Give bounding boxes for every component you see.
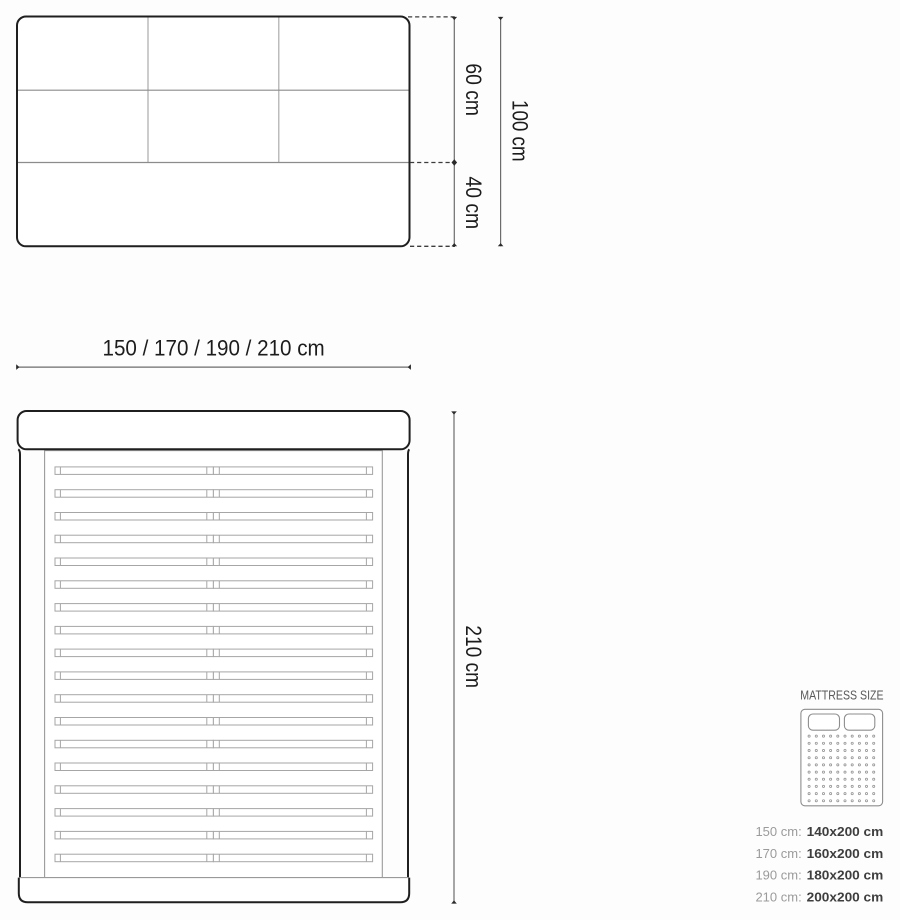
- svg-text:150 cm:: 150 cm:: [755, 824, 801, 839]
- svg-text:MATTRESS SIZE: MATTRESS SIZE: [800, 689, 883, 703]
- svg-text:40 cm: 40 cm: [461, 176, 486, 229]
- svg-text:150 / 170 / 190 / 210 cm: 150 / 170 / 190 / 210 cm: [103, 336, 325, 361]
- svg-text:160x200 cm: 160x200 cm: [807, 847, 884, 861]
- svg-text:60 cm: 60 cm: [461, 63, 486, 116]
- svg-text:210 cm:: 210 cm:: [755, 890, 801, 905]
- svg-text:170 cm:: 170 cm:: [755, 846, 801, 861]
- svg-text:180x200 cm: 180x200 cm: [807, 869, 884, 883]
- svg-text:100 cm: 100 cm: [508, 100, 533, 162]
- svg-text:140x200 cm: 140x200 cm: [807, 825, 884, 839]
- svg-text:190 cm:: 190 cm:: [755, 868, 801, 883]
- svg-text:210 cm: 210 cm: [461, 625, 486, 688]
- svg-text:200x200 cm: 200x200 cm: [807, 891, 884, 905]
